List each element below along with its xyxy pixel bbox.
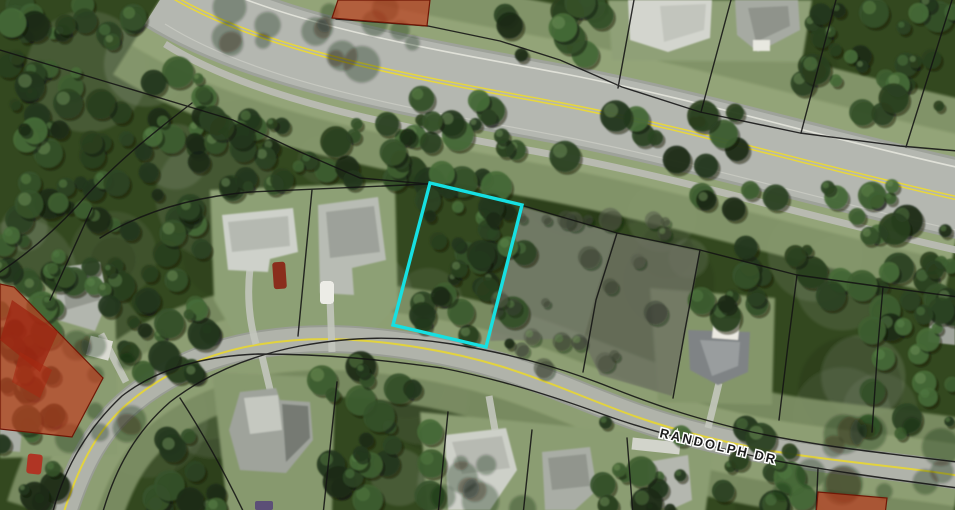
car	[26, 453, 43, 474]
map-canvas[interactable]: RANDOLPH DR	[0, 0, 955, 510]
aerial-imagery: RANDOLPH DR	[0, 0, 955, 510]
car	[272, 262, 287, 290]
car	[255, 501, 273, 510]
